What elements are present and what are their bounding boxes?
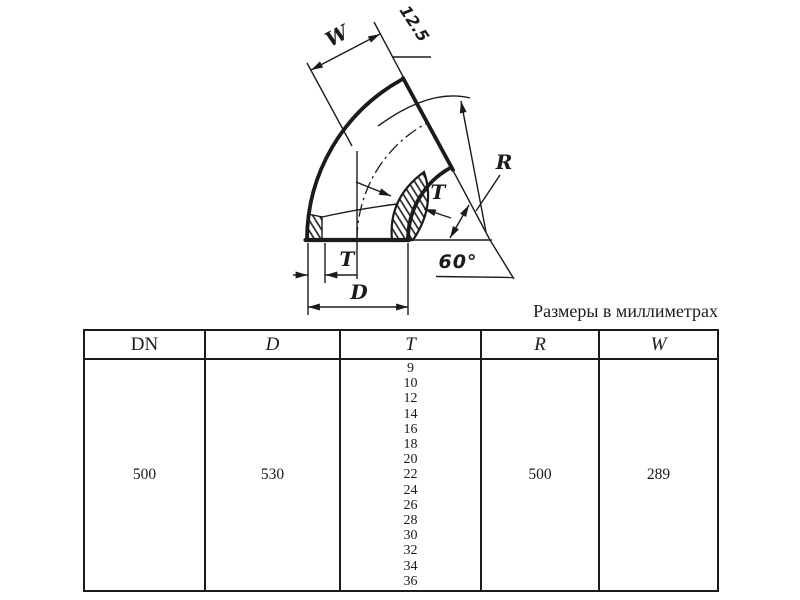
cell-d: 530 <box>205 359 340 591</box>
elbow-technical-drawing: W 12.5 R T T D 60° <box>0 0 800 330</box>
mid-wall-section <box>392 172 429 240</box>
face-plane-extension <box>490 240 514 279</box>
cell-w: 289 <box>599 359 718 591</box>
t-values-list: 91012141618202224262830323436 <box>341 360 480 589</box>
label-t-bottom: T <box>340 247 357 271</box>
col-header-dn: DN <box>84 330 205 359</box>
radius-reference-arc <box>378 96 470 126</box>
cell-dn: 500 <box>84 359 205 591</box>
label-bevel: 12.5 <box>396 2 433 45</box>
face-plane-line <box>374 22 490 240</box>
table-header-row: DN D T R W <box>84 330 718 359</box>
col-header-w: W <box>599 330 718 359</box>
label-w: W <box>321 19 354 52</box>
label-angle: 60° <box>439 251 478 273</box>
page: W 12.5 R T T D 60° Размеры в миллиметрах… <box>0 0 800 600</box>
table-data-row: 500 530 91012141618202224262830323436 50… <box>84 359 718 591</box>
label-t-mid: T <box>431 180 448 204</box>
label-d: D <box>349 280 368 304</box>
w-tangent-line <box>307 63 352 146</box>
elbow-outer-arc <box>307 80 401 240</box>
units-note: Размеры в миллиметрах <box>533 301 718 322</box>
cell-t: 91012141618202224262830323436 <box>340 359 481 591</box>
dimensions-table: DN D T R W 500 530 910121416182022242628… <box>83 329 719 592</box>
t-wall-pointer-left <box>356 182 391 196</box>
end-wall-section <box>308 214 322 240</box>
angle-double-arrow <box>450 205 469 238</box>
col-header-r: R <box>481 330 599 359</box>
t-wall-pointer-right <box>424 209 451 218</box>
cell-r: 500 <box>481 359 599 591</box>
angle-leg-line <box>436 277 513 278</box>
col-header-t: T <box>340 330 481 359</box>
radius-leader-line <box>476 175 500 211</box>
label-r: R <box>495 150 513 174</box>
col-header-d: D <box>205 330 340 359</box>
